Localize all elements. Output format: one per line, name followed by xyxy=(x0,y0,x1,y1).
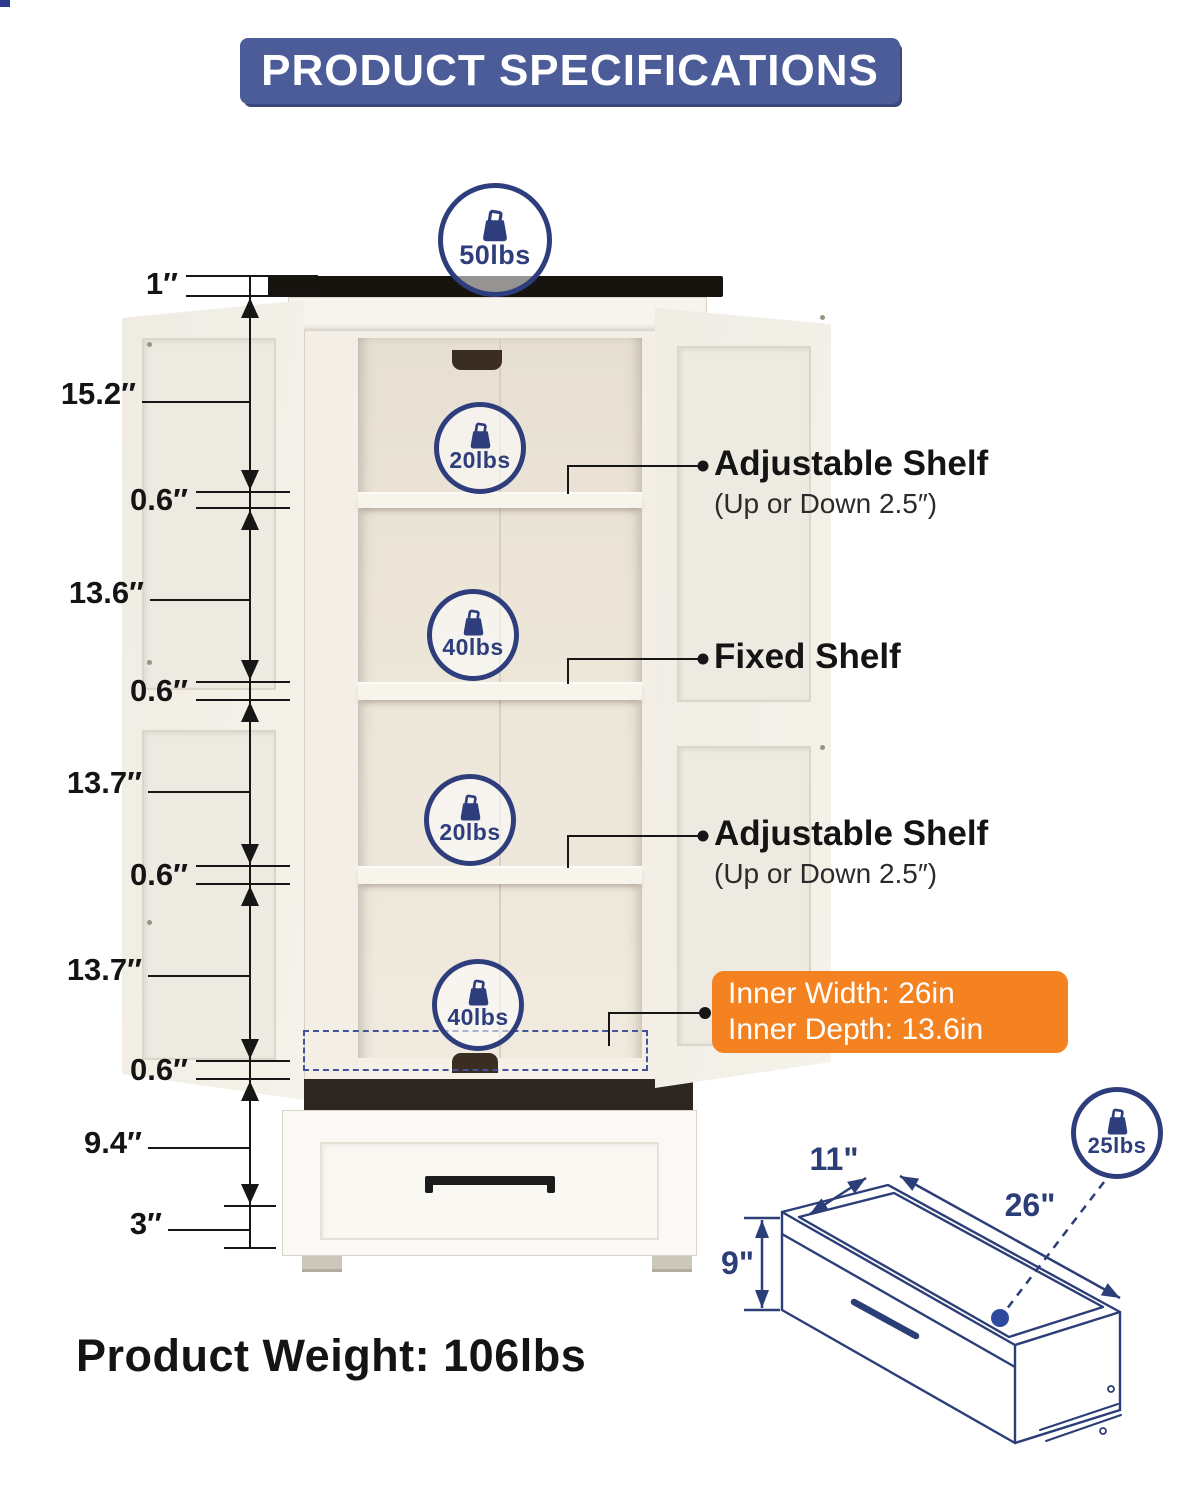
dimension-label-bottom-board: 0.6″ xyxy=(48,1050,188,1090)
door-screw xyxy=(820,745,825,750)
drawer-handle-post-right xyxy=(547,1176,555,1193)
weight-capacity-label: 40lbs xyxy=(447,1004,508,1031)
dimension-label-drawer: 9.4″ xyxy=(2,1123,142,1163)
callout-adjustable-shelf-bottom: Adjustable Shelf xyxy=(714,814,988,854)
weight-capacity-badge-shelf1: 20lbs xyxy=(434,402,526,494)
callout-adjustable-shelf-top: Adjustable Shelf xyxy=(714,444,988,484)
door-screw xyxy=(147,342,152,347)
cabinet-foot-right xyxy=(652,1256,692,1272)
dimension-label-section-3: 13.7″ xyxy=(2,763,142,803)
door-screw xyxy=(147,920,152,925)
dimension-label-shelf-2: 0.6″ xyxy=(48,671,188,711)
top-hinge-bracket xyxy=(452,350,502,370)
product-weight-text: Product Weight: 106lbs xyxy=(76,1330,586,1382)
callout-adjustable-shelf-bottom-note: (Up or Down 2.5″) xyxy=(714,858,937,890)
fixed-shelf xyxy=(358,682,642,700)
cabinet-base-strip xyxy=(304,1079,693,1110)
left-door-lower-panel xyxy=(142,730,276,1060)
weight-capacity-badge-shelf2: 40lbs xyxy=(427,589,519,681)
weight-capacity-label: 40lbs xyxy=(442,634,503,661)
dimension-label-top-board: 1″ xyxy=(38,264,178,304)
dimension-label-section-2: 13.6″ xyxy=(4,573,144,613)
weight-icon xyxy=(457,609,490,637)
dimension-label-section-1: 15.2″ xyxy=(0,374,136,414)
cabinet-foot-left xyxy=(302,1256,342,1272)
door-screw xyxy=(820,315,825,320)
weight-capacity-badge-shelf4: 40lbs xyxy=(432,959,524,1051)
inner-depth-value: Inner Depth: 13.6in xyxy=(728,1012,1052,1048)
adjustable-shelf-1 xyxy=(358,492,642,508)
weight-icon xyxy=(462,979,495,1007)
dimension-label-section-4: 13.7″ xyxy=(2,950,142,990)
corner-artifact xyxy=(0,0,10,7)
weight-icon xyxy=(475,209,515,243)
product-spec-sheet: PRODUCT SPECIFICATIONS xyxy=(0,0,1200,1500)
weight-icon xyxy=(454,794,487,822)
weight-capacity-label: 25lbs xyxy=(1088,1133,1147,1159)
dimension-label-feet: 3″ xyxy=(22,1204,162,1244)
weight-icon xyxy=(464,422,497,450)
drawer-height-label: 9" xyxy=(721,1245,754,1281)
drawer-dimension-labels: 11" 26" 9" xyxy=(721,1141,1055,1281)
capacity-pointer-dot xyxy=(991,1309,1009,1327)
weight-capacity-label: 20lbs xyxy=(449,447,510,474)
adjustable-shelf-2 xyxy=(358,866,642,884)
drawer-front-panel xyxy=(320,1142,659,1240)
weight-capacity-badge-drawer: 25lbs xyxy=(1071,1087,1163,1179)
door-screw xyxy=(147,660,152,665)
title-banner: PRODUCT SPECIFICATIONS xyxy=(240,38,900,104)
capacity-pointer-dashed-line xyxy=(1006,1182,1104,1310)
callout-fixed-shelf: Fixed Shelf xyxy=(714,637,901,677)
weight-capacity-label: 50lbs xyxy=(459,240,531,271)
callout-adjustable-shelf-top-note: (Up or Down 2.5″) xyxy=(714,488,937,520)
weight-capacity-badge-top: 50lbs xyxy=(438,183,552,297)
drawer-handle-post-left xyxy=(425,1176,433,1193)
page-title: PRODUCT SPECIFICATIONS xyxy=(261,46,879,96)
drawer-handle xyxy=(425,1176,555,1185)
drawer-wireframe xyxy=(782,1185,1121,1443)
inner-dimensions-box: Inner Width: 26in Inner Depth: 13.6in xyxy=(712,971,1068,1053)
weight-capacity-badge-shelf3: 20lbs xyxy=(424,774,516,866)
cabinet-crown xyxy=(288,297,707,331)
dimension-label-shelf-1: 0.6″ xyxy=(48,480,188,520)
weight-icon xyxy=(1101,1108,1134,1136)
inner-width-value: Inner Width: 26in xyxy=(728,976,1052,1012)
drawer-dimension-arrows xyxy=(744,1176,1120,1310)
dimension-label-shelf-3: 0.6″ xyxy=(48,855,188,895)
drawer-depth-label: 11" xyxy=(810,1141,859,1177)
weight-capacity-label: 20lbs xyxy=(439,819,500,846)
drawer-width-label: 26" xyxy=(1005,1187,1056,1223)
drawer-wire-handle xyxy=(854,1302,916,1336)
